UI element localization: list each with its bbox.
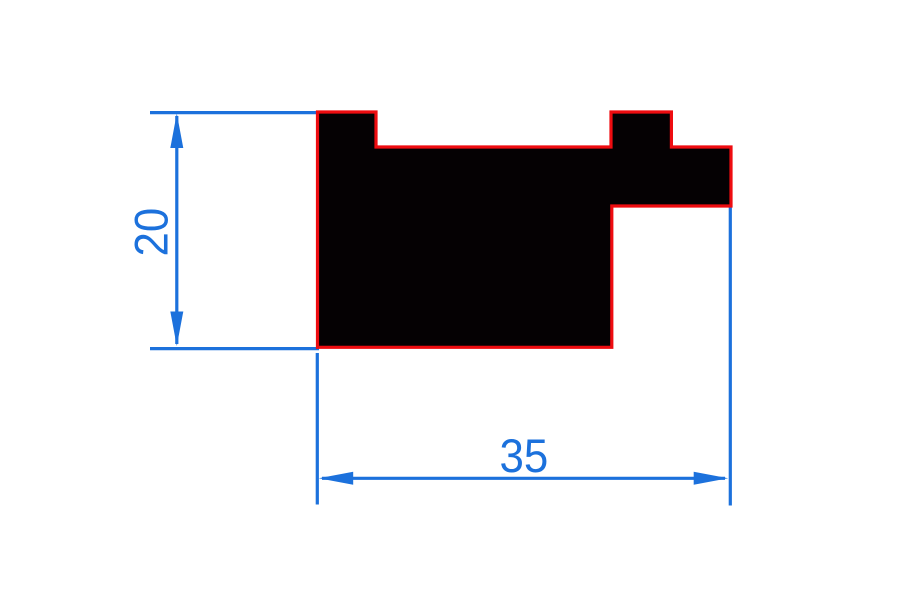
svg-text:20: 20 (125, 208, 178, 257)
svg-text:35: 35 (500, 429, 549, 482)
